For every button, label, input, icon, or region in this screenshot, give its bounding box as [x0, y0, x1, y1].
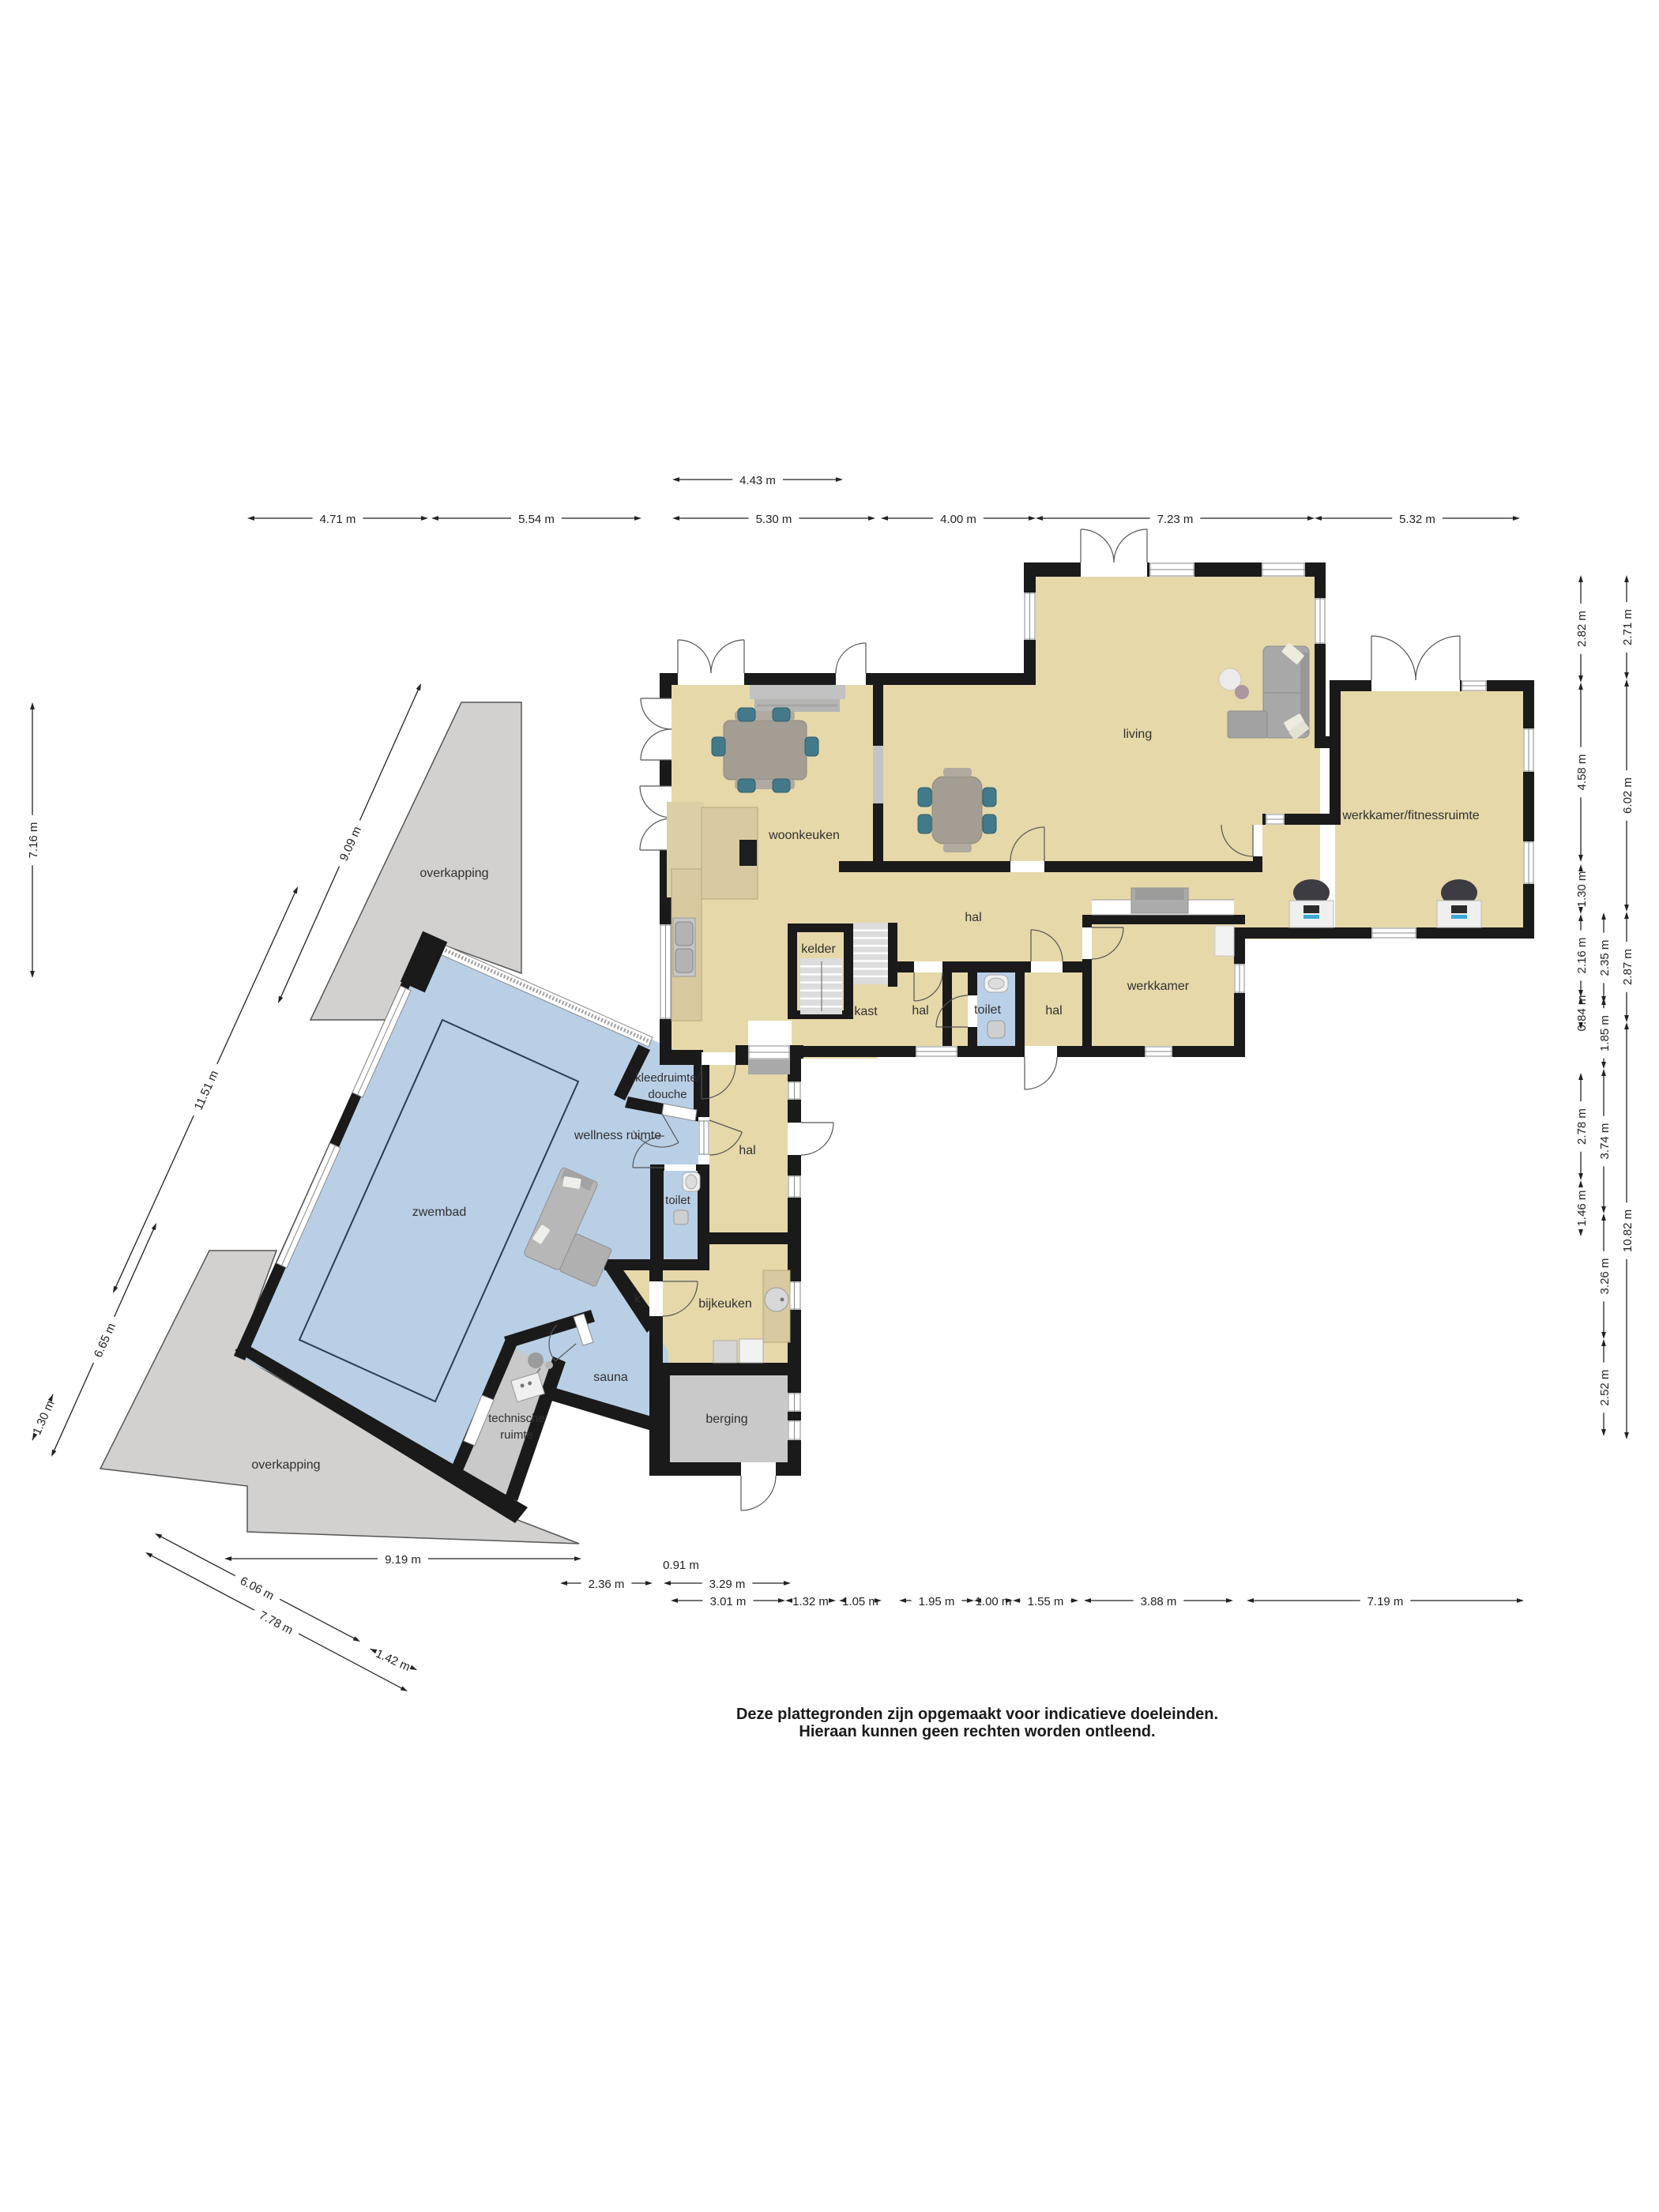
svg-text:2.78 m: 2.78 m [1575, 1108, 1589, 1145]
svg-text:toilet: toilet [974, 1003, 1001, 1017]
svg-text:7.23 m: 7.23 m [1157, 513, 1194, 526]
svg-text:3.88 m: 3.88 m [1141, 1595, 1177, 1608]
svg-text:kelder: kelder [801, 942, 836, 956]
svg-text:hal: hal [1045, 1004, 1062, 1018]
svg-text:2.36 m: 2.36 m [589, 1578, 625, 1591]
svg-text:bijkeuken: bijkeuken [698, 1297, 752, 1311]
svg-text:7.16 m: 7.16 m [27, 822, 40, 859]
svg-text:5.30 m: 5.30 m [756, 513, 792, 526]
svg-text:4.58 m: 4.58 m [1575, 754, 1589, 791]
svg-text:2.52 m: 2.52 m [1598, 1370, 1612, 1406]
svg-text:woonkeuken: woonkeuken [768, 829, 840, 842]
svg-text:Hieraan kunnen geen rechten wo: Hieraan kunnen geen rechten worden ontle… [799, 1723, 1155, 1740]
svg-text:1.46 m: 1.46 m [1575, 1191, 1589, 1227]
svg-text:hal: hal [912, 1004, 928, 1018]
svg-text:1.85 m: 1.85 m [1598, 1015, 1612, 1051]
svg-text:living: living [1123, 728, 1152, 741]
svg-text:1.00 m: 1.00 m [976, 1595, 1012, 1608]
svg-text:werkkamer: werkkamer [1127, 980, 1190, 993]
svg-text:Deze plattegronden zijn opgema: Deze plattegronden zijn opgemaakt voor i… [736, 1706, 1218, 1723]
svg-text:k: k [634, 1292, 641, 1306]
svg-text:1.30 m: 1.30 m [1575, 871, 1589, 908]
svg-text:1.05 m: 1.05 m [842, 1595, 878, 1608]
svg-text:10.82 m: 10.82 m [1621, 1209, 1635, 1252]
svg-text:hal: hal [739, 1144, 755, 1157]
svg-text:5.32 m: 5.32 m [1399, 513, 1435, 526]
svg-text:2.35 m: 2.35 m [1598, 940, 1612, 976]
svg-text:ruimte: ruimte [500, 1428, 533, 1442]
svg-text:kleedruimte/: kleedruimte/ [635, 1071, 701, 1085]
svg-text:0.84 m: 0.84 m [1575, 995, 1589, 1032]
svg-text:3.74 m: 3.74 m [1598, 1123, 1612, 1160]
svg-text:wellness ruimte: wellness ruimte [574, 1129, 661, 1142]
svg-text:kast: kast [854, 1005, 878, 1018]
svg-text:hal: hal [965, 911, 981, 924]
svg-text:overkapping: overkapping [251, 1458, 320, 1472]
svg-text:2.82 m: 2.82 m [1575, 611, 1589, 647]
svg-text:technische: technische [488, 1412, 545, 1425]
svg-text:3.29 m: 3.29 m [709, 1578, 746, 1591]
svg-text:2.87 m: 2.87 m [1621, 949, 1635, 985]
svg-text:werkkamer/fitnessruimte: werkkamer/fitnessruimte [1341, 809, 1479, 822]
svg-text:1.95 m: 1.95 m [919, 1595, 955, 1608]
svg-text:1.32 m: 1.32 m [792, 1595, 829, 1608]
svg-text:sauna: sauna [593, 1371, 628, 1384]
svg-text:3.01 m: 3.01 m [710, 1595, 747, 1608]
svg-text:5.54 m: 5.54 m [518, 513, 555, 526]
svg-text:4.00 m: 4.00 m [940, 513, 976, 526]
svg-text:2.16 m: 2.16 m [1575, 938, 1589, 974]
svg-text:overkapping: overkapping [419, 867, 488, 880]
svg-text:zwembad: zwembad [412, 1206, 466, 1219]
svg-text:6.02 m: 6.02 m [1621, 777, 1635, 814]
svg-text:7.19 m: 7.19 m [1367, 1595, 1404, 1608]
svg-text:1.55 m: 1.55 m [1028, 1595, 1064, 1608]
svg-text:9.19 m: 9.19 m [385, 1553, 421, 1567]
svg-text:4.43 m: 4.43 m [739, 474, 776, 487]
svg-text:2.71 m: 2.71 m [1621, 609, 1635, 645]
svg-text:0.91 m: 0.91 m [663, 1559, 699, 1572]
svg-text:4.71 m: 4.71 m [320, 513, 356, 526]
svg-text:berging: berging [705, 1413, 747, 1426]
svg-text:douche: douche [648, 1088, 687, 1101]
svg-text:3.26 m: 3.26 m [1598, 1258, 1612, 1295]
svg-text:toilet: toilet [665, 1194, 691, 1207]
